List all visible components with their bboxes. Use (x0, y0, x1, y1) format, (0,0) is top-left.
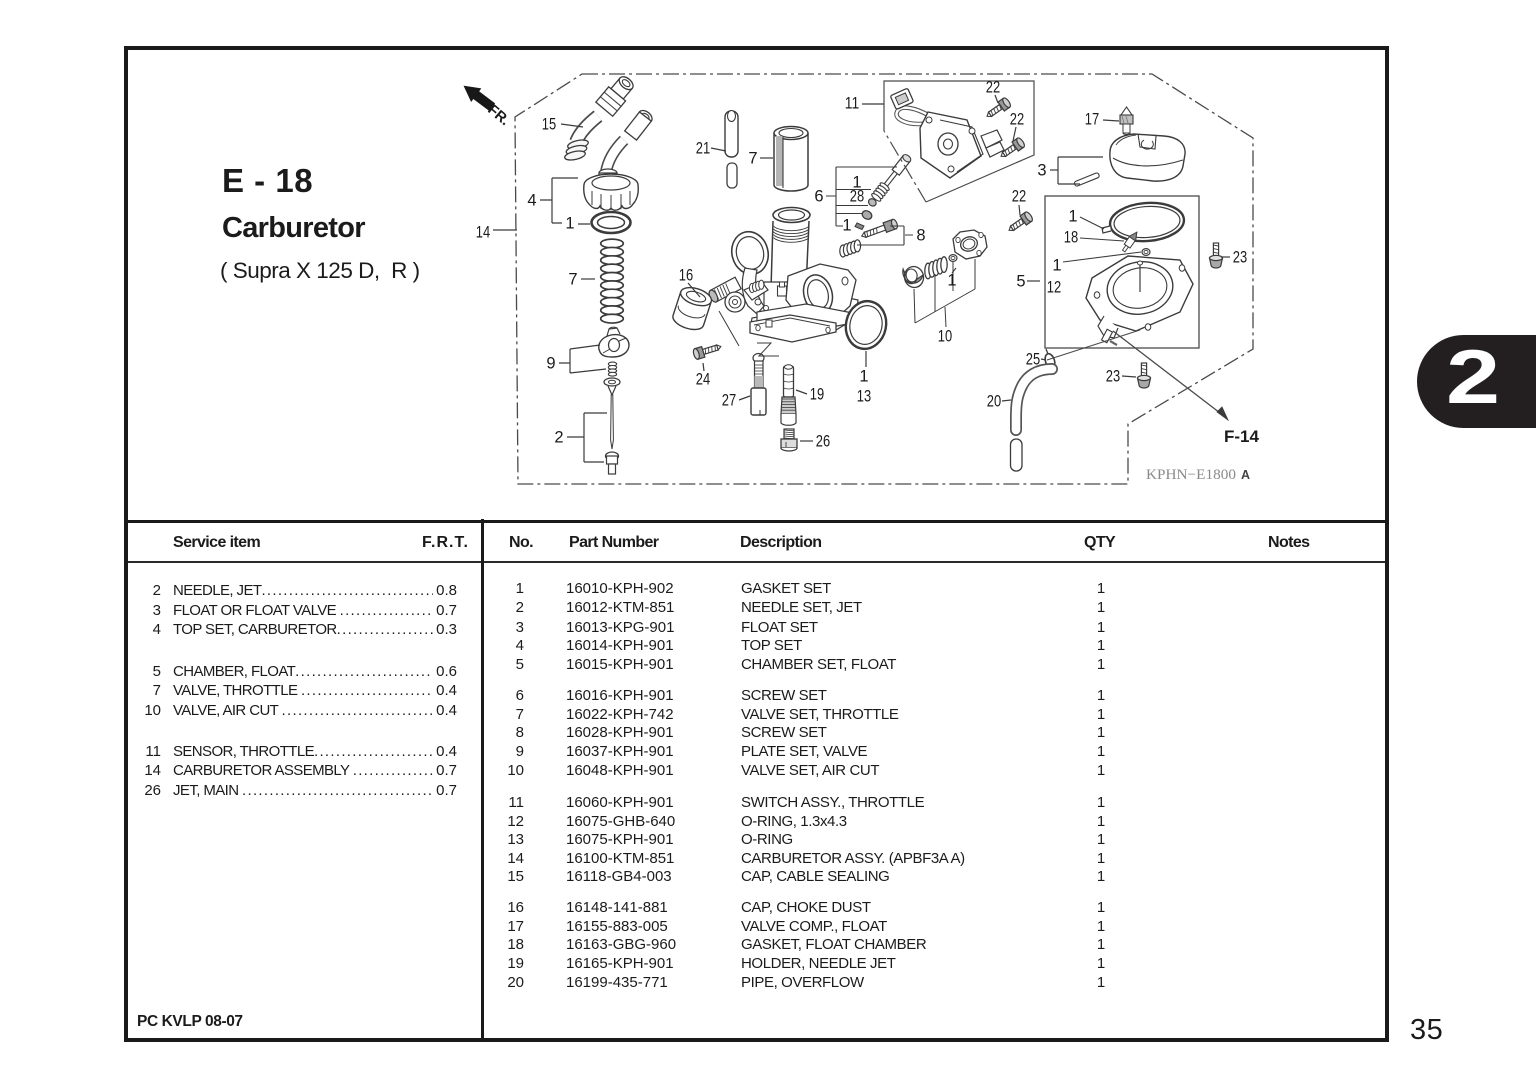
svg-text:1: 1 (859, 368, 868, 386)
svg-text:3: 3 (1037, 162, 1046, 180)
svg-text:KPHN−E1800: KPHN−E1800 (1146, 467, 1236, 483)
svg-text:2: 2 (554, 429, 563, 447)
svg-text:22: 22 (1012, 188, 1026, 206)
svg-text:22: 22 (1010, 111, 1024, 129)
svg-text:19: 19 (810, 386, 824, 404)
svg-text:15: 15 (542, 116, 556, 134)
svg-text:22: 22 (986, 79, 1000, 97)
svg-text:7: 7 (748, 150, 757, 168)
svg-text:5: 5 (1016, 273, 1025, 291)
svg-text:27: 27 (722, 392, 736, 410)
svg-text:20: 20 (987, 393, 1001, 411)
svg-text:17: 17 (1085, 111, 1099, 129)
svg-text:1: 1 (842, 217, 851, 235)
svg-text:28: 28 (850, 188, 864, 206)
svg-text:7: 7 (568, 271, 577, 289)
svg-text:1: 1 (565, 215, 574, 233)
svg-text:F-14: F-14 (1224, 427, 1260, 446)
svg-text:1: 1 (1068, 208, 1077, 226)
svg-text:A: A (1241, 468, 1250, 482)
svg-text:24: 24 (696, 371, 710, 389)
svg-text:10: 10 (938, 328, 952, 346)
svg-text:21: 21 (696, 140, 710, 158)
svg-text:23: 23 (1106, 368, 1120, 386)
svg-text:14: 14 (476, 224, 490, 242)
svg-text:25: 25 (1026, 351, 1040, 369)
svg-text:1: 1 (947, 272, 956, 290)
svg-text:6: 6 (814, 188, 823, 206)
svg-text:16: 16 (679, 267, 693, 285)
svg-text:9: 9 (546, 355, 555, 373)
svg-text:12: 12 (1047, 279, 1061, 297)
svg-text:1: 1 (1052, 257, 1061, 275)
svg-text:4: 4 (527, 192, 536, 210)
svg-text:8: 8 (916, 227, 925, 245)
svg-text:13: 13 (857, 388, 871, 406)
svg-text:18: 18 (1064, 229, 1078, 247)
svg-text:26: 26 (816, 433, 830, 451)
svg-text:23: 23 (1233, 249, 1247, 267)
svg-text:11: 11 (845, 95, 859, 113)
